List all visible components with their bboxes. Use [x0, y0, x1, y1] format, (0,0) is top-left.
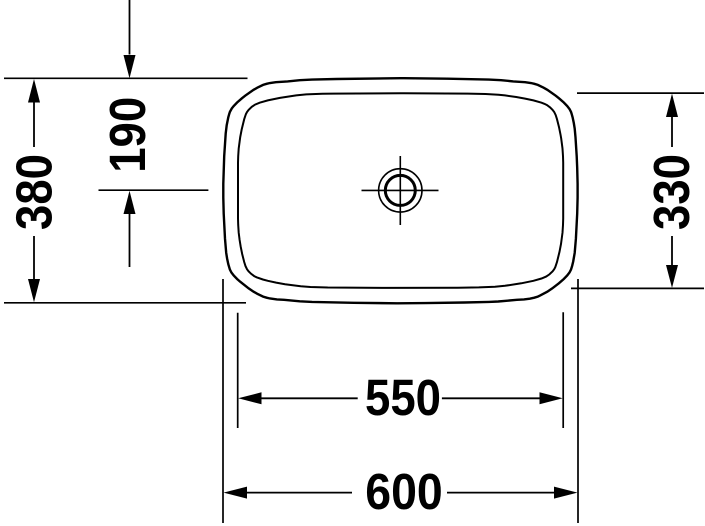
svg-text:550: 550	[365, 369, 441, 426]
svg-text:380: 380	[6, 154, 63, 230]
svg-text:190: 190	[99, 97, 156, 173]
svg-text:330: 330	[643, 154, 700, 230]
svg-text:600: 600	[365, 463, 443, 520]
